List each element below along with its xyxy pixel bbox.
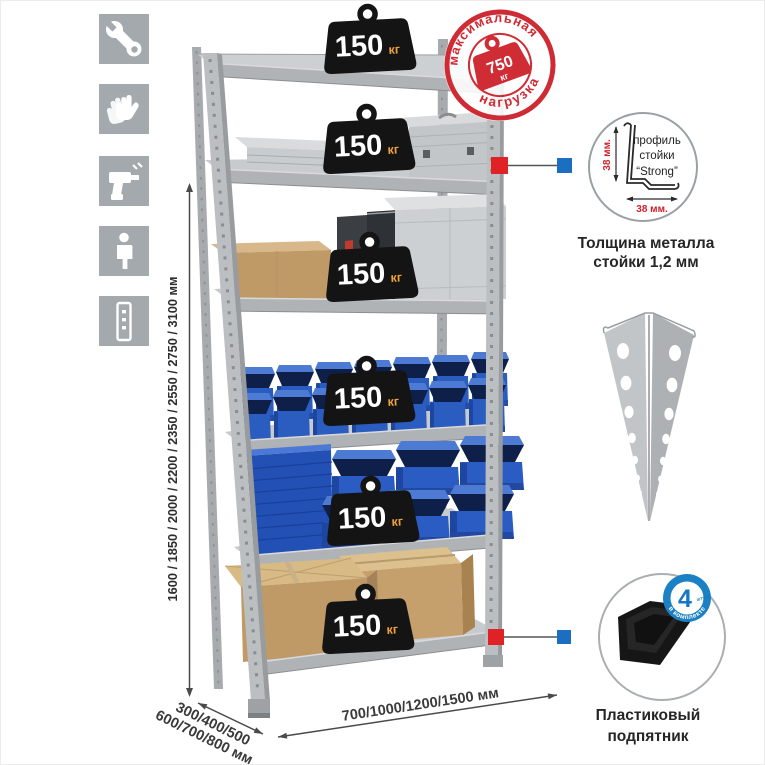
quantity-badge: 4 штуки в комплекте — [663, 574, 711, 622]
icon-column — [99, 14, 149, 346]
profile-label-1: профиль — [633, 135, 681, 147]
profile-label-3: “Strong” — [636, 166, 678, 178]
width-dimension: 700/1000/1200/1500 мм — [278, 685, 557, 738]
red-marker — [488, 629, 504, 645]
post-profile-image — [604, 313, 696, 521]
profile-detail-circle: 38 мм. 38 мм. профиль стойки “Strong” — [589, 113, 697, 221]
svg-text:кг: кг — [390, 270, 402, 285]
thickness-caption-2: стойки 1,2 мм — [593, 254, 698, 271]
height-dimension-label: 1600 / 1850 / 2000 / 2200 / 2350 / 2550 … — [165, 277, 180, 602]
profile-dim-vertical: 38 мм. — [602, 139, 613, 171]
red-marker — [491, 157, 508, 174]
rack-post-icon — [99, 296, 149, 346]
depth-dimension: 300/400/500 600/700/800 мм — [153, 693, 263, 765]
svg-text:150: 150 — [336, 257, 386, 291]
svg-text:кг: кг — [386, 622, 398, 637]
wrench-icon — [99, 14, 149, 64]
svg-text:150: 150 — [337, 501, 387, 535]
svg-text:кг: кг — [391, 514, 403, 529]
profile-label-2: стойки — [639, 150, 674, 162]
weight-badge-2: 150 кг — [320, 104, 416, 174]
blue-marker — [557, 630, 571, 644]
width-label: 700/1000/1200/1500 мм — [341, 685, 500, 725]
foot-caption-2: подпятник — [607, 728, 688, 745]
gloves-icon — [99, 84, 149, 134]
shelf-load-value: 150 — [334, 29, 384, 63]
thickness-caption-1: Толщина металла — [578, 235, 715, 252]
euro-container — [245, 444, 333, 557]
profile-dim-horizontal: 38 мм. — [636, 204, 668, 215]
weight-badge-1: 150 кг — [321, 4, 417, 74]
infographic-canvas: 1600 / 1850 / 2000 / 2200 / 2350 / 2550 … — [1, 1, 765, 765]
aluminium-case — [399, 112, 498, 182]
foot-caption-1: Пластиковый — [596, 707, 701, 724]
product-infographic: 1600 / 1850 / 2000 / 2200 / 2350 / 2550 … — [0, 0, 765, 765]
svg-text:кг: кг — [387, 142, 399, 157]
svg-text:150: 150 — [332, 609, 382, 643]
quantity-value: 4 — [678, 585, 692, 613]
svg-text:кг: кг — [387, 394, 399, 409]
svg-text:150: 150 — [333, 381, 383, 415]
callout-bottom — [488, 629, 571, 645]
callout-top — [491, 157, 572, 174]
svg-text:150: 150 — [333, 129, 383, 163]
person-icon — [99, 226, 149, 276]
shelf-load-unit: кг — [388, 42, 400, 57]
height-dimension: 1600 / 1850 / 2000 / 2200 / 2350 / 2550 … — [165, 183, 193, 697]
drill-icon — [99, 156, 149, 206]
blue-marker — [557, 158, 572, 173]
